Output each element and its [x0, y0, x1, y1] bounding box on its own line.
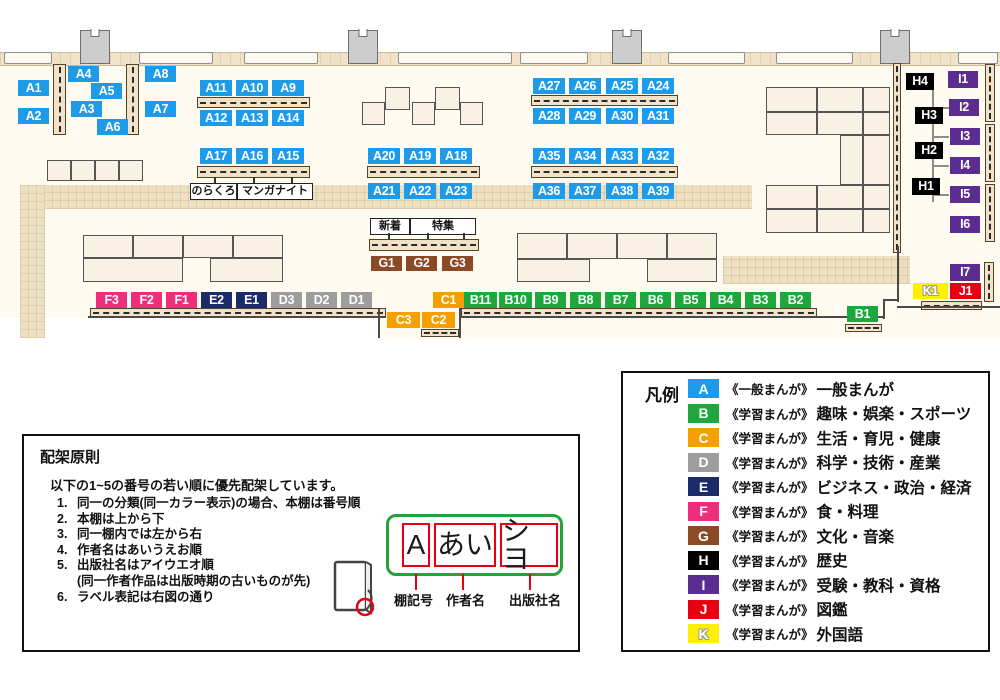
shelf-chip-C1: C1 [433, 292, 464, 308]
window [958, 52, 998, 64]
shelf-chip-A28: A28 [533, 108, 565, 124]
shelf-chip-B2: B2 [780, 292, 811, 308]
table [667, 233, 717, 259]
legend-series: 《学習まんが》 [726, 428, 814, 447]
shelf-chip-G3: G3 [442, 256, 473, 271]
annotation-tick [463, 233, 465, 239]
shelf-chip-A14: A14 [272, 110, 304, 126]
legend-title: 凡例 [645, 381, 679, 406]
legend-series: 《学習まんが》 [726, 600, 814, 619]
shelf-chip-A5: A5 [91, 83, 122, 99]
table [766, 209, 817, 233]
legend-chip-B: B [688, 404, 719, 423]
legend-series: 《学習まんが》 [726, 404, 814, 423]
principle-item: 2.本棚は上から下 [57, 512, 360, 528]
legend-chip-E: E [688, 477, 719, 496]
shelf-chip-A37: A37 [569, 183, 601, 199]
shelf-chip-F1: F1 [166, 292, 197, 308]
shelf-divider-line [932, 136, 949, 138]
table [83, 258, 183, 282]
caption-publisher: 出版社名 [509, 590, 561, 609]
annotation-tick [253, 177, 255, 183]
principle-item: 5.(同一作者作品は出版時期の古いものが先) [57, 574, 360, 590]
shelf-chip-H1: H1 [912, 178, 940, 195]
shelf-chip-D2: D2 [306, 292, 337, 308]
annotation-tick [291, 177, 293, 183]
walkway-area [723, 256, 910, 284]
shelf-chip-A13: A13 [236, 110, 268, 126]
window [668, 52, 745, 64]
shelf-chip-A39: A39 [642, 183, 674, 199]
leader-line [415, 574, 417, 590]
shelf-chip-A8: A8 [145, 66, 176, 82]
shelf-chip-A16: A16 [236, 148, 268, 164]
legend-category: 生活・育児・健康 [817, 427, 941, 449]
legend-series: 《学習まんが》 [726, 575, 814, 594]
legend-category: 外国語 [817, 623, 864, 645]
shelf-chip-I2: I2 [949, 99, 979, 116]
legend-category: 歴史 [817, 549, 848, 571]
shelf-chip-A23: A23 [440, 183, 472, 199]
shelf-chip-A2: A2 [18, 108, 49, 124]
annotation-tick [388, 233, 390, 239]
shelf-chip-A21: A21 [368, 183, 400, 199]
legend-chip-K: K [688, 624, 719, 643]
pillar-notch [623, 29, 632, 37]
shelf-chip-B3: B3 [745, 292, 776, 308]
shelf-chip-A35: A35 [533, 148, 565, 164]
map-annotation: マンガナイト [237, 183, 313, 200]
shelf-chip-A17: A17 [200, 148, 232, 164]
table [817, 87, 863, 112]
table [817, 185, 863, 209]
label-author: あい [434, 523, 496, 567]
shelf-chip-D1: D1 [341, 292, 372, 308]
table [840, 135, 863, 185]
window [139, 52, 213, 64]
table [460, 102, 483, 125]
shelf-chip-D3: D3 [271, 292, 302, 308]
table [863, 135, 890, 185]
shelf-chip-A30: A30 [606, 108, 638, 124]
shelf-chip-A34: A34 [569, 148, 601, 164]
shelf-chip-A20: A20 [368, 148, 400, 164]
table [83, 235, 133, 258]
legend-series: 《学習まんが》 [726, 551, 814, 570]
book-icon [328, 554, 384, 620]
legend-category: 図鑑 [817, 598, 848, 620]
legend-category: 趣味・娯楽・スポーツ [817, 402, 972, 424]
legend-row-E: E《学習まんが》ビジネス・政治・経済 [688, 477, 972, 496]
table [71, 160, 95, 181]
shelf-chip-H2: H2 [915, 142, 943, 159]
shelf-chip-B5: B5 [675, 292, 706, 308]
shelf-chip-A3: A3 [71, 101, 102, 117]
table [766, 87, 817, 112]
principle-item: 4.作者名はあいうえお順 [57, 543, 360, 559]
legend-rows: A《一般まんが》一般まんがB《学習まんが》趣味・娯楽・スポーツC《学習まんが》生… [688, 379, 972, 643]
legend-category: 受験・教科・資格 [817, 574, 941, 596]
principles-list: 1.同一の分類(同一カラー表示)の場合、本棚は番号順2.本棚は上から下3.同一棚… [57, 496, 360, 605]
legend-category: ビジネス・政治・経済 [817, 476, 972, 498]
legend-row-B: B《学習まんが》趣味・娯楽・スポーツ [688, 404, 972, 423]
pillar [612, 30, 642, 64]
shelf-chip-A11: A11 [200, 80, 232, 96]
legend-series: 《学習まんが》 [726, 502, 814, 521]
shelf-chip-C3: C3 [387, 312, 420, 328]
principles-intro: 以下の1~5の番号の若い順に優先配架しています。 [50, 475, 343, 494]
label-example: A あい シヨ [386, 514, 563, 576]
legend-category: 一般まんが [817, 378, 895, 400]
legend-series: 《学習まんが》 [726, 526, 814, 545]
pillar [80, 30, 110, 64]
table [119, 160, 143, 181]
table [412, 102, 435, 125]
table [95, 160, 119, 181]
window [398, 52, 512, 64]
shelf-chip-E1: E1 [236, 292, 267, 308]
shelf-chip-F2: F2 [131, 292, 162, 308]
shelf-chip-B4: B4 [710, 292, 741, 308]
legend-row-J: J《学習まんが》図鑑 [688, 600, 972, 619]
pillar [880, 30, 910, 64]
wall-line [897, 306, 1000, 308]
table [210, 258, 283, 282]
table [517, 233, 567, 259]
bookshelf [53, 64, 66, 135]
bookshelf [985, 124, 995, 182]
table [617, 233, 667, 259]
leader-line [462, 574, 464, 590]
annotation-tick [427, 233, 429, 239]
bookshelf [893, 63, 901, 253]
table [517, 259, 590, 282]
table [233, 235, 283, 258]
bookshelf [197, 97, 310, 108]
floor-area [380, 318, 1000, 340]
shelf-chip-E2: E2 [201, 292, 232, 308]
shelf-chip-H3: H3 [915, 107, 943, 124]
walkway-area [20, 185, 45, 338]
shelf-chip-I4: I4 [950, 157, 980, 174]
pillar-notch [91, 29, 100, 37]
table [183, 235, 233, 258]
wall-line [88, 316, 386, 318]
bookshelf [531, 95, 678, 106]
map-annotation: 特集 [410, 218, 476, 235]
legend-series: 《学習まんが》 [726, 453, 814, 472]
shelf-chip-I5: I5 [950, 186, 980, 203]
caption-author: 作者名 [446, 590, 485, 609]
map-annotation: 新着 [370, 218, 410, 235]
floor-map-page: A1A2A4A5A3A6A8A7A11A10A9A12A13A14A17A16A… [0, 0, 1000, 700]
legend-category: 文化・音楽 [817, 525, 895, 547]
legend-category: 科学・技術・産業 [817, 451, 941, 473]
legend-series: 《一般まんが》 [726, 379, 814, 398]
pillar [348, 30, 378, 64]
caption-shelf-code: 棚記号 [394, 590, 433, 609]
legend-chip-J: J [688, 600, 719, 619]
shelf-chip-B6: B6 [640, 292, 671, 308]
pillar-notch [359, 29, 368, 37]
table [817, 209, 863, 233]
shelf-chip-A7: A7 [145, 101, 176, 117]
table [47, 160, 71, 181]
table [863, 112, 890, 135]
legend-row-A: A《一般まんが》一般まんが [688, 379, 972, 398]
shelf-chip-A24: A24 [642, 78, 674, 94]
bookshelf [985, 184, 995, 242]
shelf-chip-A1: A1 [18, 80, 49, 96]
table [817, 112, 863, 135]
shelf-chip-B9: B9 [535, 292, 566, 308]
legend-chip-H: H [688, 551, 719, 570]
table [863, 209, 890, 233]
principles-title: 配架原則 [40, 446, 100, 467]
shelf-chip-A4: A4 [68, 66, 99, 82]
shelf-chip-A19: A19 [404, 148, 436, 164]
wall-line [897, 246, 899, 302]
legend-category: 食・料理 [817, 500, 879, 522]
shelf-chip-A10: A10 [236, 80, 268, 96]
bookshelf [984, 262, 994, 302]
wall-line [883, 299, 885, 319]
shelf-chip-I3: I3 [950, 128, 980, 145]
legend-chip-G: G [688, 526, 719, 545]
shelf-chip-A12: A12 [200, 110, 232, 126]
label-publisher: シヨ [500, 523, 558, 567]
shelf-chip-I6: I6 [950, 216, 980, 233]
table [133, 235, 183, 258]
shelf-chip-J1: J1 [950, 283, 981, 299]
wall-line [459, 308, 461, 338]
principle-item: 6.ラベル表記は右図の通り [57, 590, 360, 606]
legend-row-C: C《学習まんが》生活・育児・健康 [688, 428, 972, 447]
bookshelf [531, 166, 678, 178]
table [362, 102, 385, 125]
shelf-chip-F3: F3 [96, 292, 127, 308]
bookshelf [367, 166, 480, 178]
shelf-chip-B8: B8 [570, 292, 601, 308]
principle-item: 1.同一の分類(同一カラー表示)の場合、本棚は番号順 [57, 496, 360, 512]
window [520, 52, 588, 64]
legend-box: 凡例 A《一般まんが》一般まんがB《学習まんが》趣味・娯楽・スポーツC《学習まん… [621, 371, 990, 652]
table [863, 185, 890, 209]
legend-series: 《学習まんが》 [726, 624, 814, 643]
window [4, 52, 52, 64]
shelf-chip-I1: I1 [948, 71, 978, 88]
legend-chip-D: D [688, 453, 719, 472]
legend-chip-A: A [688, 379, 719, 398]
shelf-chip-A9: A9 [272, 80, 304, 96]
leader-line [529, 574, 531, 590]
shelf-chip-C2: C2 [422, 312, 455, 328]
shelf-divider-line [932, 165, 949, 167]
bookshelf [421, 329, 459, 337]
pillar-notch [891, 29, 900, 37]
legend-chip-F: F [688, 502, 719, 521]
shelf-chip-B10: B10 [499, 292, 532, 308]
annotation-tick [214, 177, 216, 183]
shelf-chip-A26: A26 [569, 78, 601, 94]
table [766, 185, 817, 209]
shelf-chip-B1: B1 [847, 306, 878, 322]
bookshelf [369, 239, 479, 251]
shelf-chip-A18: A18 [440, 148, 472, 164]
principle-item: 5.出版社名はアイウエオ順 [57, 558, 360, 574]
shelf-chip-A6: A6 [97, 119, 128, 135]
shelf-chip-A22: A22 [404, 183, 436, 199]
window [776, 52, 853, 64]
bookshelf [985, 64, 995, 122]
map-annotation: のらくろ [190, 183, 237, 200]
shelf-chip-B7: B7 [605, 292, 636, 308]
legend-series: 《学習まんが》 [726, 477, 814, 496]
table [647, 259, 717, 282]
shelf-chip-A38: A38 [606, 183, 638, 199]
table [435, 87, 460, 110]
shelf-chip-H4: H4 [906, 73, 934, 90]
legend-chip-I: I [688, 575, 719, 594]
shelf-chip-A25: A25 [606, 78, 638, 94]
wall-line [460, 316, 884, 318]
shelf-chip-A31: A31 [642, 108, 674, 124]
legend-row-H: H《学習まんが》歴史 [688, 551, 972, 570]
shelf-chip-G1: G1 [371, 256, 402, 271]
legend-row-G: G《学習まんが》文化・音楽 [688, 526, 972, 545]
shelf-chip-A15: A15 [272, 148, 304, 164]
wall-line [378, 308, 380, 338]
shelf-chip-K1: K1 [913, 283, 948, 299]
legend-row-I: I《学習まんが》受験・教科・資格 [688, 575, 972, 594]
shelf-chip-G2: G2 [406, 256, 437, 271]
bookshelf [845, 324, 882, 332]
shelf-chip-A27: A27 [533, 78, 565, 94]
shelf-chip-A29: A29 [569, 108, 601, 124]
window [244, 52, 318, 64]
shelf-chip-A32: A32 [642, 148, 674, 164]
legend-row-D: D《学習まんが》科学・技術・産業 [688, 453, 972, 472]
principle-item: 3.同一棚内では左から右 [57, 527, 360, 543]
legend-chip-C: C [688, 428, 719, 447]
shelf-chip-B11: B11 [464, 292, 497, 308]
legend-row-F: F《学習まんが》食・料理 [688, 502, 972, 521]
shelf-chip-I7: I7 [950, 264, 980, 281]
legend-row-K: K《学習まんが》外国語 [688, 624, 972, 643]
shelf-chip-A36: A36 [533, 183, 565, 199]
table [385, 87, 410, 110]
table [863, 87, 890, 112]
label-shelf-code: A [402, 523, 430, 567]
shelf-chip-A33: A33 [606, 148, 638, 164]
table [766, 112, 817, 135]
table [567, 233, 617, 259]
